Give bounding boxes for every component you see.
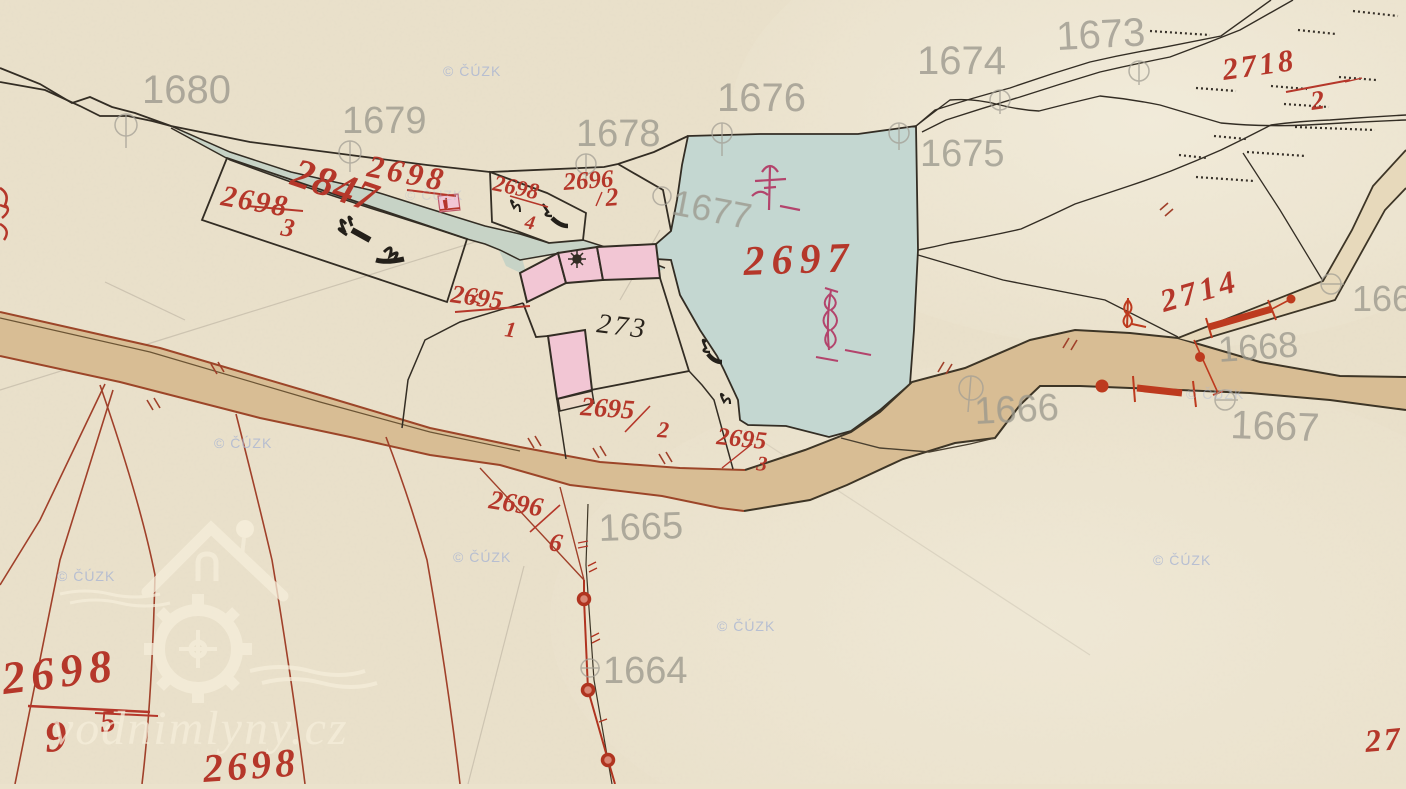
svg-text:1675: 1675 [920, 133, 1005, 175]
svg-text:1674: 1674 [917, 39, 1006, 83]
svg-text:© ČÚZK: © ČÚZK [214, 435, 272, 451]
svg-text:1668: 1668 [1217, 323, 1300, 369]
svg-text:© ČÚZK: © ČÚZK [405, 187, 463, 203]
svg-text:© ČÚZK: © ČÚZK [57, 568, 115, 584]
svg-text:© ČÚZK: © ČÚZK [443, 63, 501, 79]
svg-text:© ČÚZK: © ČÚZK [453, 549, 511, 565]
svg-text:1679: 1679 [342, 100, 427, 142]
svg-text:© ČÚZK: © ČÚZK [717, 618, 775, 634]
svg-text:1667: 1667 [1230, 403, 1320, 450]
svg-text:1680: 1680 [142, 68, 231, 112]
svg-text:27: 27 [1362, 720, 1404, 759]
svg-text:1676: 1676 [717, 76, 806, 120]
svg-text:2: 2 [656, 417, 670, 443]
svg-text:2: 2 [603, 182, 619, 212]
svg-text:© ČÚZK: © ČÚZK [1186, 386, 1244, 402]
svg-text:273: 273 [595, 308, 649, 345]
svg-text:1678: 1678 [576, 113, 661, 155]
svg-text:vodnimlyny.cz: vodnimlyny.cz [52, 702, 349, 755]
svg-text:© ČÚZK: © ČÚZK [1153, 552, 1211, 568]
svg-text:2695: 2695 [579, 391, 636, 425]
svg-text:2697: 2697 [742, 235, 857, 285]
svg-text:1673: 1673 [1055, 10, 1146, 59]
svg-text:166: 166 [1352, 278, 1406, 319]
svg-text:1664: 1664 [603, 650, 688, 692]
svg-text:1666: 1666 [973, 387, 1060, 433]
svg-text:1665: 1665 [598, 505, 684, 550]
